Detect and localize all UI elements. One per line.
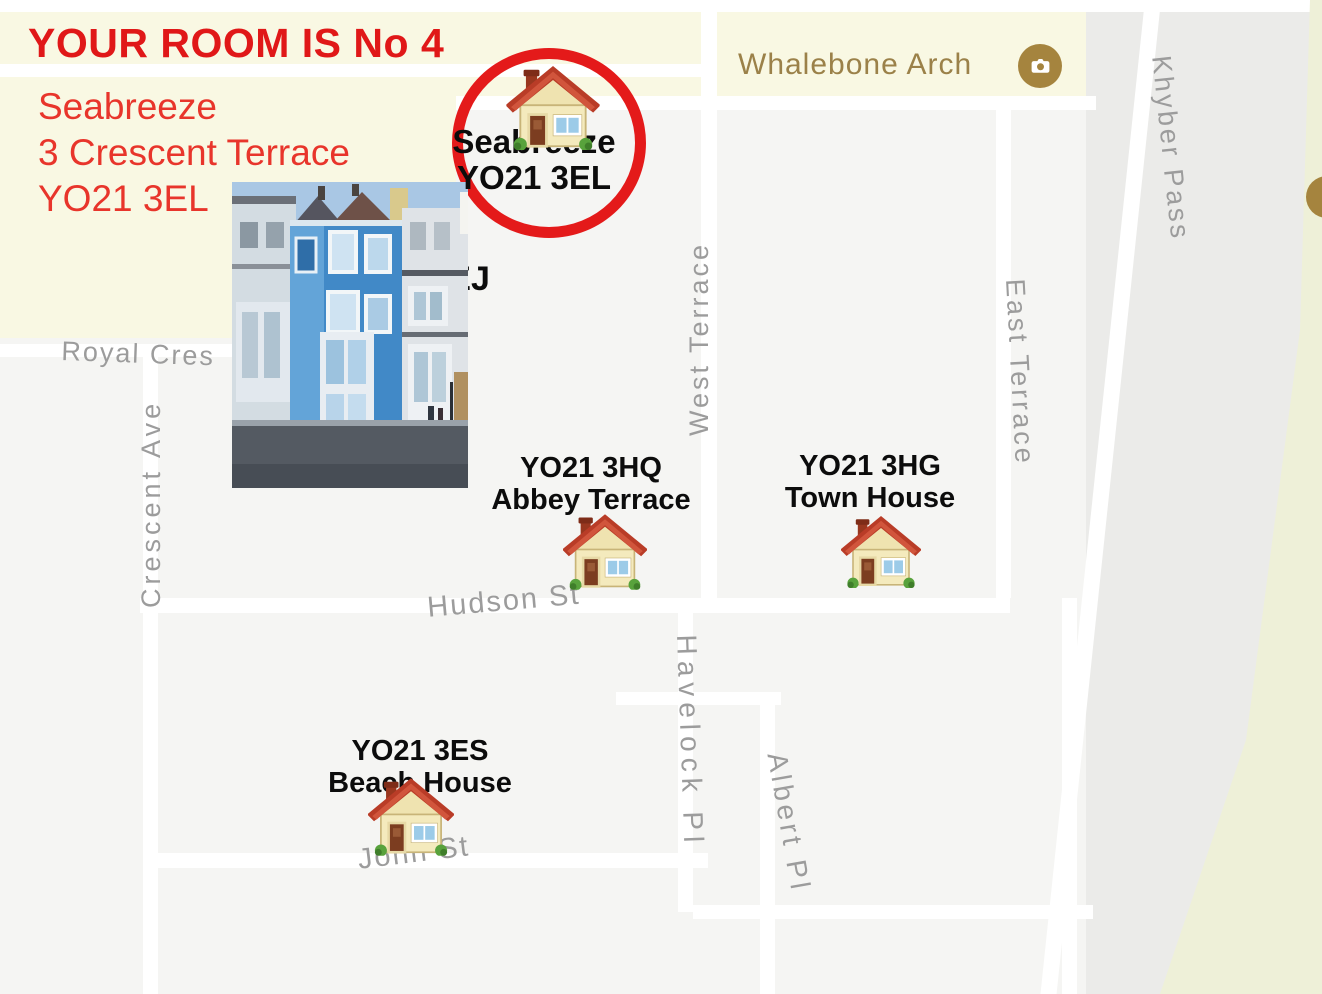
- room-number-heading: YOUR ROOM IS No 4: [28, 20, 444, 67]
- street-albert-pl: [760, 700, 775, 994]
- camera-glyph: [1027, 53, 1054, 80]
- property-label-town-house: YO21 3HG Town House: [735, 450, 1005, 514]
- street-label-royal-cres: Royal Cres: [61, 336, 216, 372]
- street-label-havelock-pl: Havelock Pl: [670, 634, 709, 849]
- address-line-street: 3 Crescent Terrace: [38, 130, 350, 176]
- property-postcode: YO21 3HQ: [456, 452, 726, 484]
- address-line-name: Seabreeze: [38, 84, 350, 130]
- street-label-hudson-st: Hudson St: [426, 579, 582, 625]
- property-label-abbey-terrace: YO21 3HQ Abbey Terrace: [456, 452, 726, 516]
- poi-label-whalebone-arch[interactable]: Whalebone Arch: [738, 48, 972, 82]
- map-region-green-strip: [1086, 0, 1322, 994]
- map-canvas: Royal Cres Crescent Ave West Terrace Eas…: [0, 0, 1322, 994]
- property-postcode: YO21 3HG: [735, 450, 1005, 482]
- house-icon[interactable]: [368, 778, 454, 856]
- house-icon[interactable]: [841, 516, 921, 588]
- address-line-postcode: YO21 3EL: [38, 176, 350, 222]
- property-postcode: YO21 3ES: [285, 735, 555, 767]
- house-icon[interactable]: [563, 514, 647, 590]
- highlighted-property-postcode: YO21 3EL: [434, 160, 634, 196]
- street-south-cross-road: [693, 905, 1093, 919]
- street-label-crescent-ave: Crescent Ave: [136, 400, 167, 608]
- house-icon[interactable]: [500, 66, 606, 150]
- property-name: Abbey Terrace: [456, 484, 726, 516]
- seabreeze-building-photo: [232, 182, 468, 488]
- address-block: Seabreeze 3 Crescent Terrace YO21 3EL: [38, 84, 350, 222]
- street-label-west-terrace: West Terrace: [684, 242, 715, 436]
- street-southeast-road: [1062, 598, 1077, 994]
- camera-icon[interactable]: [1018, 44, 1062, 88]
- property-name: Town House: [735, 482, 1005, 514]
